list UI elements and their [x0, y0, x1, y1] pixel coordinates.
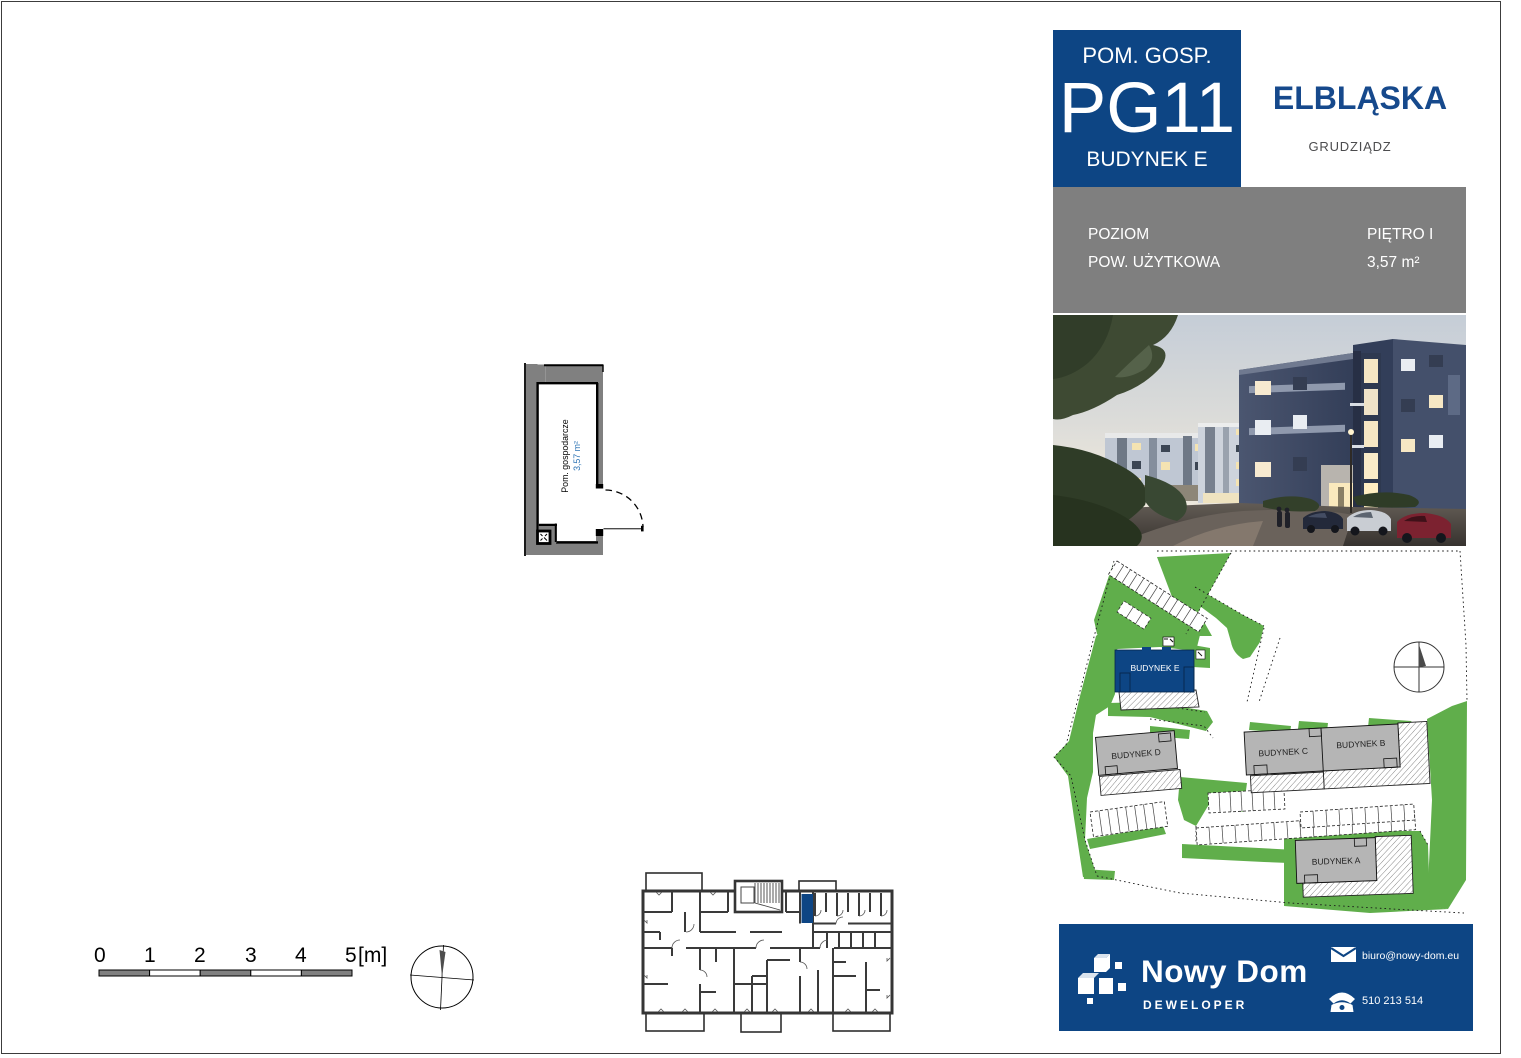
- svg-text:5: 5: [345, 944, 357, 967]
- svg-text:3,57 m²: 3,57 m²: [572, 441, 582, 471]
- svg-text:[m]: [m]: [358, 944, 387, 967]
- svg-text:Pom. gospodarcze: Pom. gospodarcze: [560, 419, 570, 492]
- svg-text:BUDYNEK A: BUDYNEK A: [1312, 855, 1361, 867]
- svg-text:3: 3: [245, 944, 257, 967]
- svg-text:2: 2: [194, 944, 206, 967]
- svg-text:BUDYNEK E: BUDYNEK E: [1130, 663, 1179, 673]
- svg-text:0: 0: [94, 944, 106, 967]
- svg-text:1: 1: [144, 944, 156, 967]
- svg-text:4: 4: [295, 944, 307, 967]
